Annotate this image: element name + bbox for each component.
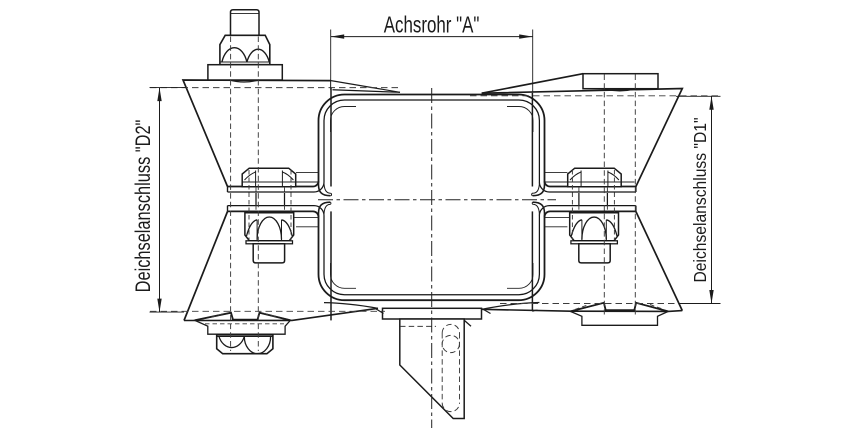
svg-text:Achsrohr "A": Achsrohr "A" — [384, 12, 480, 38]
svg-text:Deichselanschluss "D1": Deichselanschluss "D1" — [690, 117, 710, 282]
svg-text:Deichselanschluss "D2": Deichselanschluss "D2" — [131, 120, 154, 293]
